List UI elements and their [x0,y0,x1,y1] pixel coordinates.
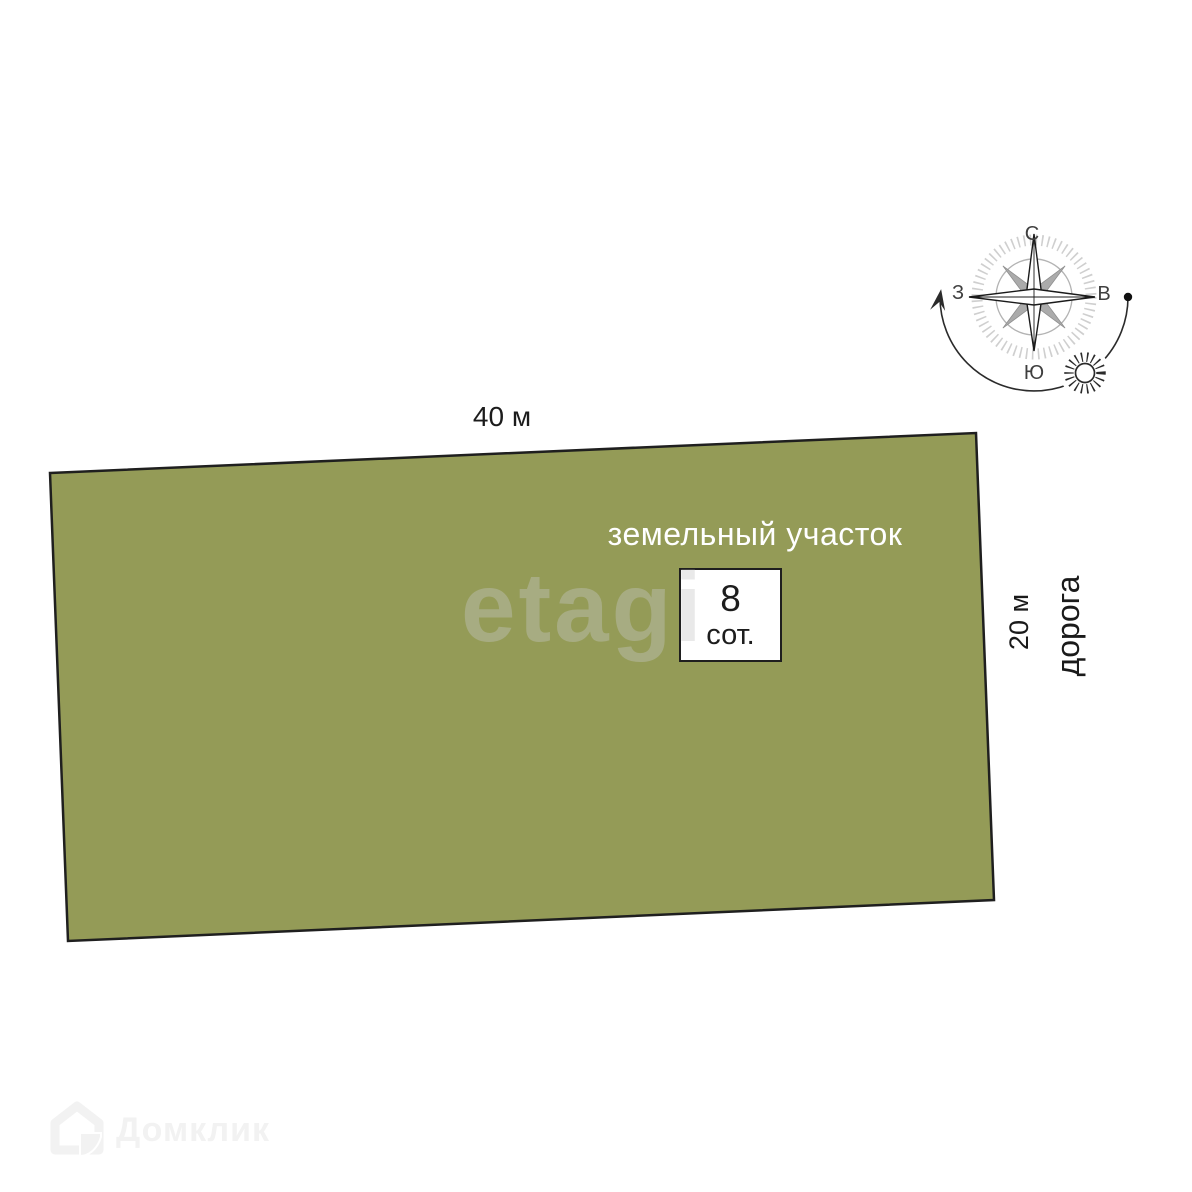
area-box: 8 сот. [679,568,782,662]
area-value: 8 [720,580,741,617]
domclick-watermark: Домклик [50,1100,270,1160]
land-plot-plan: С Ю З В 40 м земельный участок 8 сот. 20… [0,0,1192,1192]
parcel-title-label: земельный участок [608,516,903,553]
house-icon [50,1100,104,1160]
domclick-label: Домклик [116,1111,270,1150]
parcel-shape [50,433,994,941]
area-unit: сот. [706,620,754,650]
top-dimension-label: 40 м [402,402,602,432]
right-dimension-label: 20 м [1005,572,1033,672]
road-label: дорога [1051,556,1085,696]
